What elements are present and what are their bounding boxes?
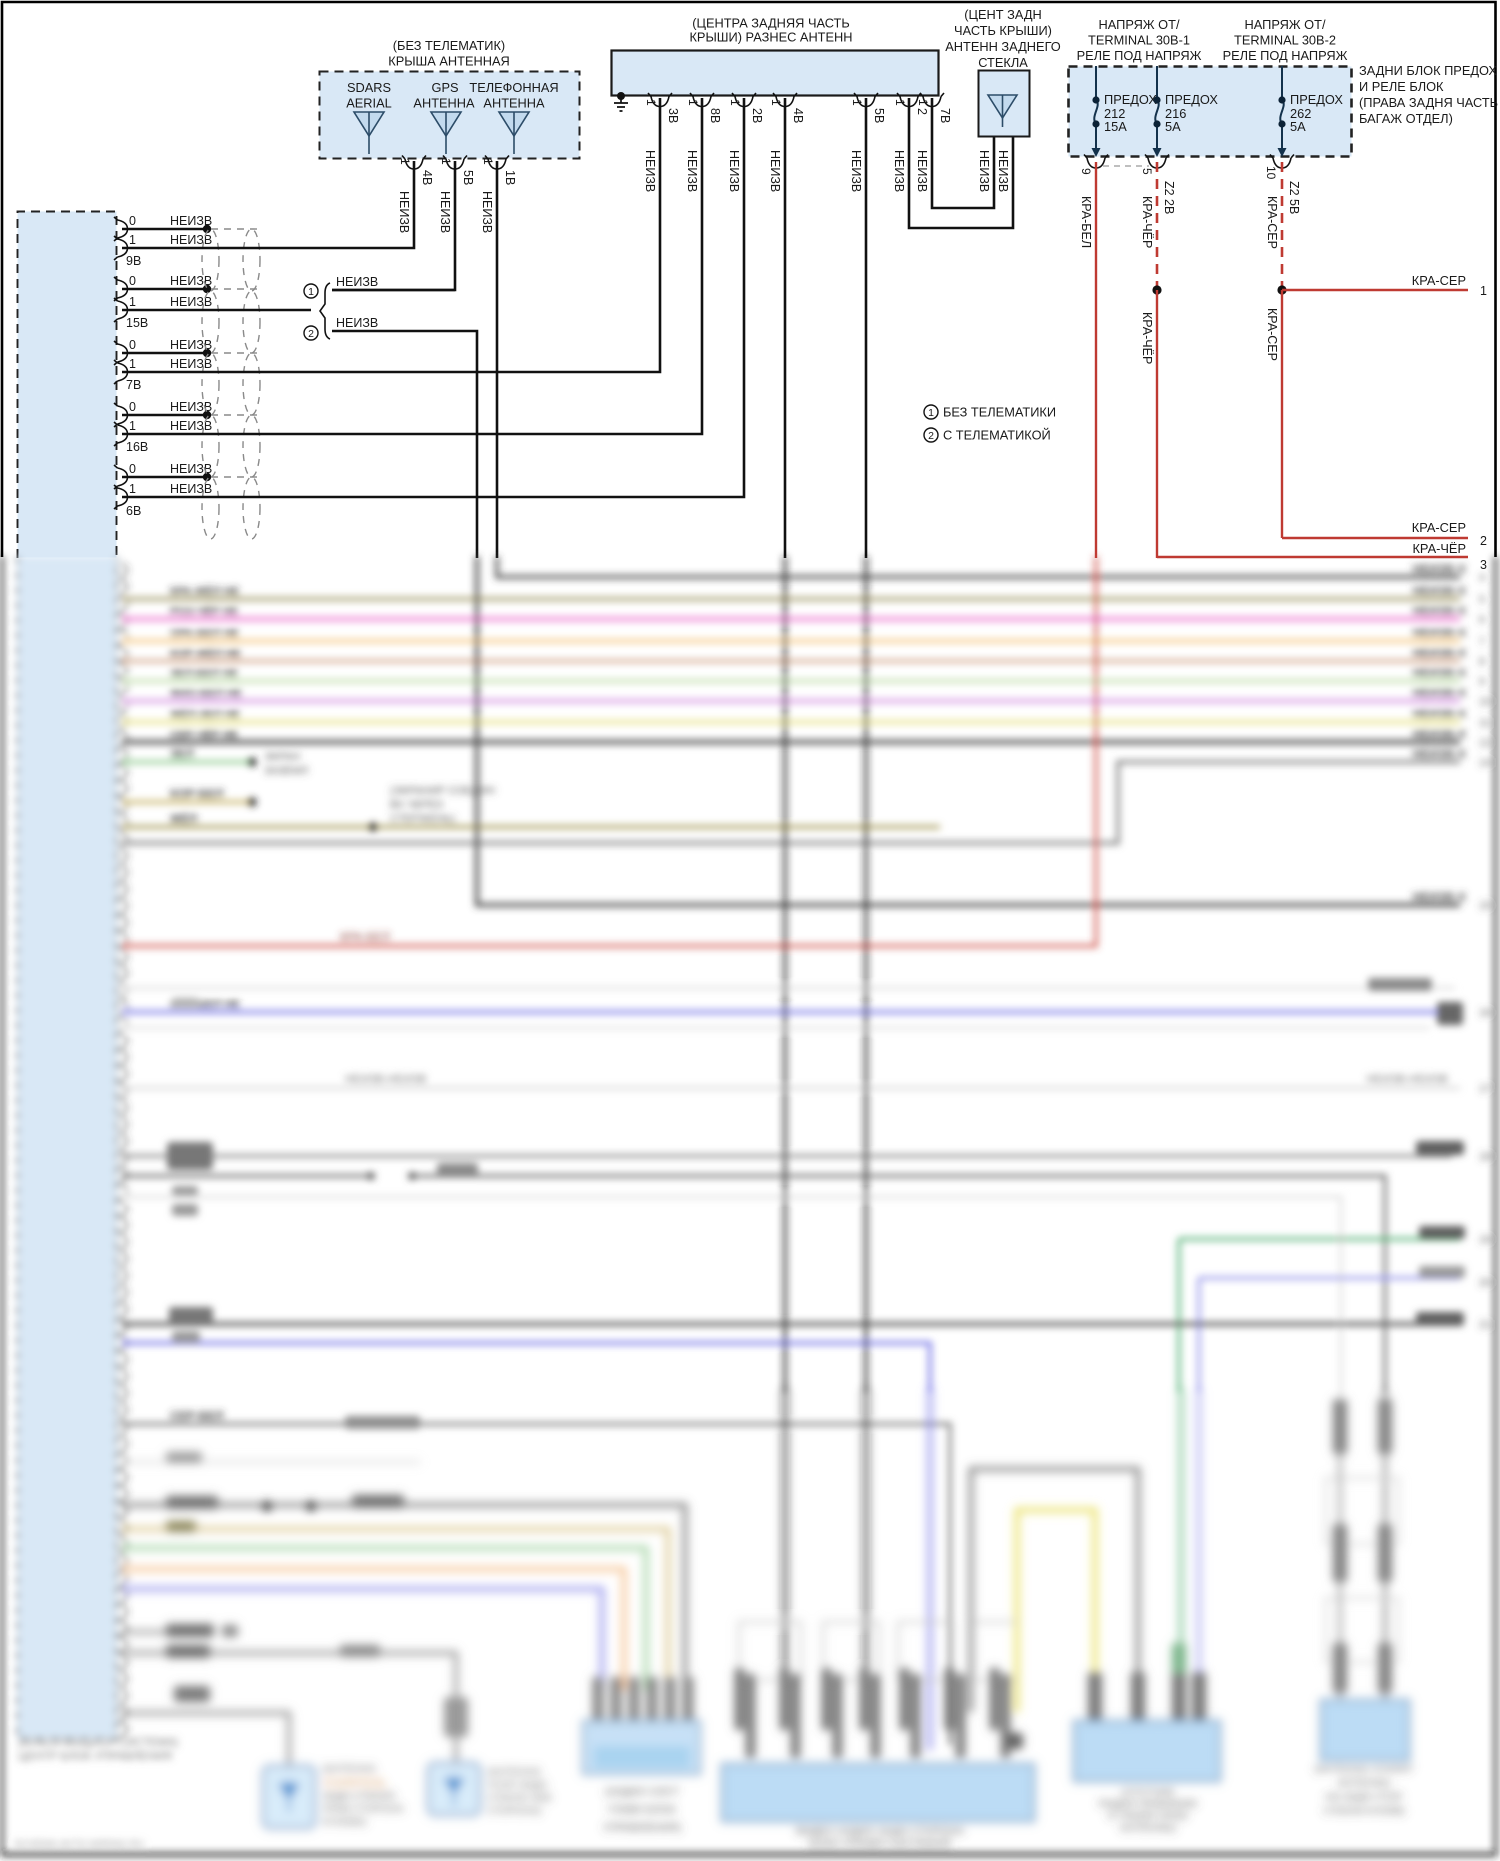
svg-text:21: 21 [1479, 1319, 1491, 1331]
svg-text:КРА-ЧЁР: КРА-ЧЁР [1140, 312, 1154, 364]
svg-text:ПРЕДОХ: ПРЕДОХ [1104, 92, 1157, 107]
svg-text:15В: 15В [126, 316, 148, 330]
svg-text:НЕИЗВ: НЕИЗВ [977, 150, 991, 192]
svg-text:КРА-ЖЁЛ НЕ: КРА-ЖЁЛ НЕ [170, 585, 240, 598]
svg-text:1: 1 [1480, 284, 1487, 298]
svg-text:1: 1 [129, 357, 136, 371]
svg-text:(СПУТНИК: (СПУТНИК [1122, 1786, 1176, 1798]
svg-text:SCHEMA-AVTO-WIRING.RU: SCHEMA-AVTO-WIRING.RU [14, 1839, 144, 1850]
svg-text:11: 11 [1479, 717, 1490, 729]
svg-text:(АНТЕННА УСИЛИТ: (АНТЕННА УСИЛИТ [1314, 1763, 1414, 1775]
svg-text:TERMINAL 30В-1: TERMINAL 30В-1 [1088, 33, 1190, 48]
svg-text:НЕИЗВ-НЕИЗВ: НЕИЗВ-НЕИЗВ [1366, 1074, 1448, 1086]
svg-text:9: 9 [1079, 168, 1093, 175]
svg-text:2: 2 [308, 328, 314, 340]
svg-text:0: 0 [129, 274, 136, 288]
svg-text:8В: 8В [708, 108, 722, 123]
svg-text:НЕИЗВ: НЕИЗВ [727, 150, 741, 192]
svg-text:(ПРАВА ЗАДНЯ ЧАСТЬ: (ПРАВА ЗАДНЯ ЧАСТЬ [1359, 95, 1498, 110]
svg-text:GPS: GPS [431, 80, 458, 95]
svg-text:НЕИЗВ-Х: НЕИЗВ-Х [1413, 727, 1466, 741]
svg-text:5В: 5В [872, 108, 886, 123]
svg-text:КРА-СЕР: КРА-СЕР [1412, 520, 1466, 535]
svg-text:1: 1 [916, 99, 930, 106]
svg-text:АНТЕННЫ): АНТЕННЫ) [1120, 1822, 1176, 1834]
svg-text:8: 8 [1479, 656, 1485, 668]
svg-text:АНТЕННА: АНТЕННА [413, 96, 475, 111]
svg-text:2: 2 [915, 108, 929, 115]
svg-text:7В: 7В [126, 378, 141, 392]
svg-text:2: 2 [928, 430, 934, 442]
svg-text:НЕИЗВ-Х: НЕИЗВ-Х [1413, 686, 1466, 700]
svg-text:НЕИЗВ-Х: НЕИЗВ-Х [1413, 584, 1466, 598]
svg-text:ТЕЛЕФОННАЯ: ТЕЛЕФОННАЯ [469, 80, 558, 95]
svg-text:СТЕКЛА ЛЕВ: СТЕКЛА ЛЕВ [487, 1792, 551, 1804]
svg-text:1: 1 [398, 158, 412, 165]
svg-text:УСИЛИТЕЛЬ: УСИЛИТЕЛЬ [322, 1777, 386, 1789]
svg-text:КРА-СЕР: КРА-СЕР [1265, 308, 1279, 361]
svg-text:КРА-СЕР: КРА-СЕР [1265, 196, 1279, 249]
svg-text:6: 6 [1479, 614, 1485, 626]
svg-text:БЕЗ ТЕЛЕМАТИКИ: БЕЗ ТЕЛЕМАТИКИ [943, 405, 1056, 420]
svg-text:Z2 5В: Z2 5В [1287, 181, 1301, 214]
svg-text:НЕИЗВ: НЕИЗВ [438, 191, 452, 233]
svg-text:РОЗ-ЧЁР НЕ: РОЗ-ЧЁР НЕ [170, 605, 239, 618]
svg-text:9В: 9В [126, 254, 141, 268]
svg-text:ЖЁЛ: ЖЁЛ [169, 811, 197, 826]
svg-text:AERIAL: AERIAL [346, 96, 392, 111]
svg-text:(ЭКРАНИР СОЕДИН: (ЭКРАНИР СОЕДИН [390, 785, 495, 797]
svg-text:КРА-ЧЁР: КРА-ЧЁР [1140, 196, 1154, 248]
svg-text:НЕИЗВ-НЕИЗВ: НЕИЗВ-НЕИЗВ [345, 1074, 427, 1086]
svg-text:КОР-ЖЁЛ НЕ: КОР-ЖЁЛ НЕ [170, 647, 241, 660]
svg-text:9: 9 [1479, 676, 1485, 688]
svg-text:НАПРЯЖ ОТ/: НАПРЯЖ ОТ/ [1098, 17, 1179, 32]
svg-text:НЕИЗВ: НЕИЗВ [915, 150, 929, 192]
svg-text:НЕИЗВ: НЕИЗВ [336, 316, 378, 330]
svg-text:АНТЕННА: АНТЕННА [483, 96, 545, 111]
svg-text:ПРЕДОХ: ПРЕДОХ [1165, 92, 1218, 107]
svg-text:7: 7 [1479, 636, 1485, 648]
svg-text:17: 17 [1479, 1083, 1491, 1095]
svg-text:СТОРОНА): СТОРОНА) [487, 1805, 541, 1817]
svg-text:НЕИЗВ: НЕИЗВ [892, 150, 906, 192]
svg-text:НЕИЗВ: НЕИЗВ [336, 275, 378, 289]
svg-text:1: 1 [308, 286, 314, 298]
svg-text:ЗЕЛ: ЗЕЛ [170, 747, 194, 761]
svg-text:1: 1 [129, 295, 136, 309]
svg-text:ОРА-БЕЛ НЕ: ОРА-БЕЛ НЕ [170, 628, 240, 640]
svg-text:0: 0 [129, 338, 136, 352]
svg-text:ГЛАВН БЛОК: ГЛАВН БЛОК [608, 1804, 676, 1816]
svg-text:1: 1 [129, 482, 136, 496]
svg-text:5В: 5В [461, 170, 475, 185]
svg-text:КРА-ЧЁР: КРА-ЧЁР [1412, 541, 1466, 556]
svg-text:СТЕРЖЕНЬ): СТЕРЖЕНЬ) [390, 813, 455, 825]
svg-text:НЕИЗВ-Х: НЕИЗВ-Х [1413, 562, 1466, 576]
svg-text:АНТЕНН ЗАДНЕГО: АНТЕНН ЗАДНЕГО [945, 39, 1061, 54]
svg-text:ЖЁЛ-ЗЕЛ НЕ: ЖЁЛ-ЗЕЛ НЕ [169, 708, 241, 721]
svg-text:10: 10 [1479, 696, 1491, 708]
svg-text:19: 19 [1479, 1234, 1491, 1246]
svg-text:14: 14 [1479, 757, 1491, 769]
svg-text:(ИНФОРМАЦИОН СИСТЕМА): (ИНФОРМАЦИОН СИСТЕМА) [18, 1737, 179, 1749]
svg-text:РЕЛЕ ПОД НАПРЯЖ: РЕЛЕ ПОД НАПРЯЖ [1077, 48, 1202, 63]
svg-text:СЕР-БЕЛ: СЕР-БЕЛ [170, 1409, 224, 1423]
svg-text:(БЕЗ ТЕЛЕМАТИК): (БЕЗ ТЕЛЕМАТИК) [393, 38, 505, 53]
svg-text:ЗАЗЕМЛ: ЗАЗЕМЛ [264, 765, 308, 777]
svg-text:НЕИЗВ-Х: НЕИЗВ-Х [1413, 646, 1466, 660]
svg-text:НЕИЗВ: НЕИЗВ [685, 150, 699, 192]
svg-text:5: 5 [1479, 594, 1485, 606]
svg-text:НА ЗАДН СТОР: НА ЗАДН СТОР [1325, 1791, 1402, 1803]
svg-text:3В: 3В [666, 108, 680, 123]
svg-text:УСИЛ ЗАДН: УСИЛ ЗАДН [487, 1779, 547, 1791]
svg-text:4В: 4В [420, 170, 434, 185]
svg-text:0: 0 [129, 214, 136, 228]
svg-text:НЕИЗВ: НЕИЗВ [643, 150, 657, 192]
svg-text:(АНТЕННА: (АНТЕННА [322, 1763, 376, 1775]
svg-text:РЕЛЕ ПОД НАПРЯЖ: РЕЛЕ ПОД НАПРЯЖ [1223, 48, 1348, 63]
svg-text:КРА-СЕР: КРА-СЕР [1412, 273, 1466, 288]
svg-text:(АУДИО СИСТ: (АУДИО СИСТ [605, 1786, 679, 1798]
svg-text:5А: 5А [1165, 119, 1181, 134]
svg-text:15: 15 [1479, 900, 1491, 912]
svg-text:НЕИЗВ: НЕИЗВ [996, 150, 1010, 192]
svg-text:TERMINAL 30В-2: TERMINAL 30В-2 [1234, 33, 1336, 48]
svg-text:18: 18 [1479, 1151, 1491, 1163]
svg-text:SDARS: SDARS [347, 80, 391, 95]
svg-text:7В: 7В [938, 108, 952, 123]
svg-text:НЕИЗВ: НЕИЗВ [170, 482, 212, 496]
svg-text:15А: 15А [1104, 119, 1127, 134]
svg-text:НЕИЗВ-Х: НЕИЗВ-Х [1413, 604, 1466, 618]
svg-text:(ЦЕНТРА ЗАДНЯЯ ЧАСТЬ: (ЦЕНТРА ЗАДНЯЯ ЧАСТЬ [692, 16, 850, 31]
svg-text:2: 2 [1480, 534, 1487, 548]
svg-text:4В: 4В [791, 108, 805, 123]
svg-text:(АНТЕННА: (АНТЕННА [487, 1766, 541, 1778]
svg-text:СТЕКЛА: СТЕКЛА [978, 55, 1028, 70]
svg-text:1: 1 [686, 99, 700, 106]
svg-text:НЕИЗВ-Х: НЕИЗВ-Х [1413, 890, 1466, 904]
svg-text:КРЫША АНТЕННАЯ: КРЫША АНТЕННАЯ [388, 54, 510, 69]
svg-text:ЗАДН СТЕКЛО: ЗАДН СТЕКЛО [322, 1790, 395, 1802]
svg-text:НЕИЗВ-Х: НЕИЗВ-Х [1413, 626, 1466, 640]
svg-text:НЕИЗВ: НЕИЗВ [480, 191, 494, 233]
svg-text:1: 1 [893, 99, 907, 106]
svg-text:1: 1 [850, 99, 864, 106]
svg-text:2В: 2В [750, 108, 764, 123]
svg-text:ЗЕЛ-БЕЛ НЕ: ЗЕЛ-БЕЛ НЕ [170, 668, 239, 680]
svg-text:1: 1 [129, 419, 136, 433]
svg-text:10: 10 [1264, 166, 1278, 180]
svg-text:БАГАЖ ОТДЕЛ): БАГАЖ ОТДЕЛ) [1359, 111, 1453, 126]
svg-text:0: 0 [129, 400, 136, 414]
svg-text:КОР-БЕЛ: КОР-БЕЛ [170, 787, 224, 801]
svg-text:1В: 1В [503, 170, 517, 185]
svg-text:1: 1 [728, 99, 742, 106]
svg-text:16В: 16В [126, 440, 148, 454]
svg-text:НЕИЗВ-Х: НЕИЗВ-Х [1413, 747, 1466, 761]
svg-text:5А: 5А [1290, 119, 1306, 134]
svg-text:ЧАСТЬ КРЫШИ): ЧАСТЬ КРЫШИ) [954, 23, 1052, 38]
svg-text:ЦЕНТР БЛОК УПРАВЛЕНИЯ: ЦЕНТР БЛОК УПРАВЛЕНИЯ [18, 1751, 172, 1763]
svg-text:1: 1 [644, 99, 658, 106]
svg-text:НАПРЯЖ ОТ/: НАПРЯЖ ОТ/ [1244, 17, 1325, 32]
svg-text:НЕИЗВ-Х: НЕИЗВ-Х [1413, 666, 1466, 680]
svg-text:И РЕЛЕ БЛОК: И РЕЛЕ БЛОК [1359, 79, 1444, 94]
svg-text:СЕР-ЧЁР НЕ: СЕР-ЧЁР НЕ [170, 728, 239, 741]
svg-text:ПРЕДОХ: ПРЕДОХ [1290, 92, 1343, 107]
svg-text:20: 20 [1479, 1277, 1491, 1289]
svg-text:5: 5 [1140, 168, 1154, 175]
svg-text:СТЕКЛА КУЗОВ): СТЕКЛА КУЗОВ) [1323, 1805, 1404, 1817]
svg-text:КРА-БЕЛ: КРА-БЕЛ [340, 930, 390, 944]
svg-text:НЕИЗВ: НЕИЗВ [768, 150, 782, 192]
svg-text:1: 1 [769, 99, 783, 106]
svg-text:16: 16 [1479, 1007, 1491, 1019]
svg-text:УПРАВЛЕНИЯ): УПРАВЛЕНИЯ) [603, 1822, 681, 1834]
svg-text:ЭКРАН: ЭКРАН [264, 751, 300, 763]
svg-text:1: 1 [129, 233, 136, 247]
svg-text:ВХ ЧЕРЕЗ: ВХ ЧЕРЕЗ [390, 799, 443, 811]
svg-text:0: 0 [129, 462, 136, 476]
svg-text:АНТЕННЫ: АНТЕННЫ [1338, 1777, 1390, 1789]
svg-text:ПРАВ СТОРОНА: ПРАВ СТОРОНА [322, 1803, 404, 1815]
svg-text:3: 3 [1480, 558, 1487, 572]
svg-text:НЕИЗВ-Х: НЕИЗВ-Х [1413, 707, 1466, 721]
svg-text:КРА-БЕЛ: КРА-БЕЛ [1079, 196, 1093, 248]
svg-text:БЛОК УПРАВЛ СИСТЕМОЙ: БЛОК УПРАВЛ СИСТЕМОЙ [809, 1837, 951, 1850]
svg-text:1: 1 [481, 158, 495, 165]
svg-text:6В: 6В [126, 504, 141, 518]
svg-text:РАДИО ПРИЕМНИК: РАДИО ПРИЕМНИК [1099, 1798, 1198, 1810]
svg-text:И ТЮНЕР БЛОК: И ТЮНЕР БЛОК [1108, 1810, 1189, 1822]
svg-text:НЕИЗВ: НЕИЗВ [397, 191, 411, 233]
svg-text:12: 12 [1479, 737, 1491, 749]
svg-text:ЗАДНИ БЛОК ПРЕДОХ: ЗАДНИ БЛОК ПРЕДОХ [1359, 63, 1497, 78]
svg-text:НЕИЗВ: НЕИЗВ [849, 150, 863, 192]
svg-text:Z2 2В: Z2 2В [1162, 181, 1176, 214]
svg-text:4: 4 [1479, 572, 1485, 584]
svg-text:1: 1 [439, 158, 453, 165]
svg-text:КРЫШИ) РАЗНЕС АНТЕНН: КРЫШИ) РАЗНЕС АНТЕНН [689, 30, 852, 45]
svg-text:1: 1 [928, 407, 934, 419]
svg-text:С ТЕЛЕМАТИКОЙ: С ТЕЛЕМАТИКОЙ [943, 428, 1051, 443]
svg-text:(ЦЕНТ ЗАДН: (ЦЕНТ ЗАДН [964, 7, 1041, 22]
svg-text:КУЗОВА): КУЗОВА) [322, 1816, 366, 1828]
svg-text:ВИДЕО АУДИО ЗАДН СТОРОНА: ВИДЕО АУДИО ЗАДН СТОРОНА [796, 1825, 965, 1837]
svg-text:ФИО-БЕЛ НЕ: ФИО-БЕЛ НЕ [170, 688, 243, 700]
